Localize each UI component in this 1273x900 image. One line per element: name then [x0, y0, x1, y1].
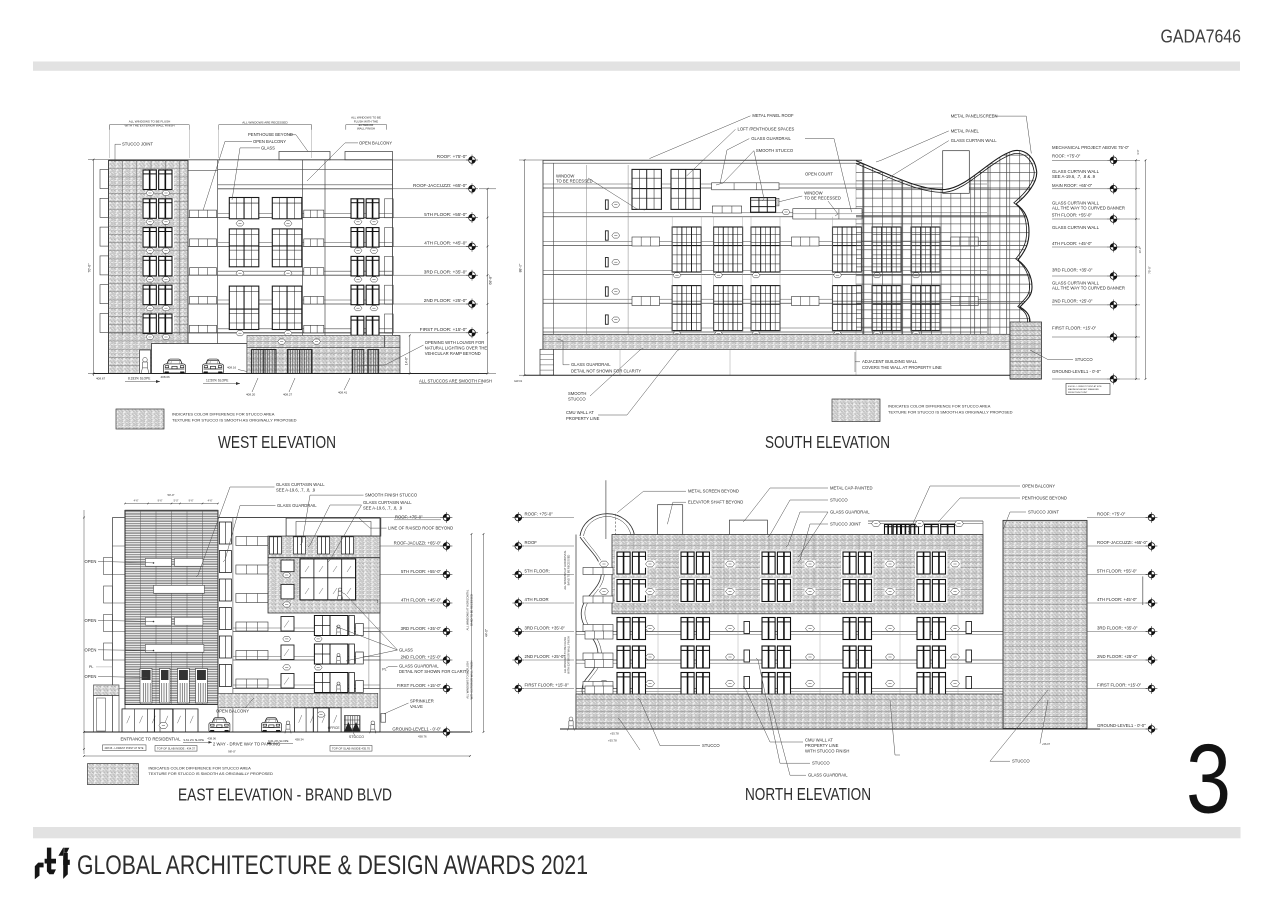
svg-text:408.06: 408.06	[161, 375, 171, 379]
svg-text:STUCCO: STUCCO	[830, 497, 848, 502]
svg-text:SMOOTH STUCCO: SMOOTH STUCCO	[756, 148, 794, 153]
svg-text:SMOOTH: SMOOTH	[568, 391, 586, 396]
svg-text:STUCCO: STUCCO	[812, 761, 830, 766]
svg-text:GLASS GUARDRAIL: GLASS GUARDRAIL	[808, 773, 848, 778]
svg-text:ROOF: +75'-0": ROOF: +75'-0"	[525, 512, 554, 517]
svg-text:4'-6": 4'-6"	[208, 500, 213, 503]
svg-text:14'-6": 14'-6"	[405, 357, 409, 365]
svg-text:2ND FLOOR: +25'-0": 2ND FLOOR: +25'-0"	[1097, 654, 1138, 659]
svg-text:WALL FINISH: WALL FINISH	[357, 127, 375, 131]
svg-text:408.16: 408.16	[227, 366, 237, 370]
svg-text:WITH EXTERIOR WALL FINISH: WITH EXTERIOR WALL FINISH	[567, 636, 571, 674]
svg-text:ALL THE WAY TO CURVED BANNER: ALL THE WAY TO CURVED BANNER	[1052, 206, 1125, 211]
svg-text:SEE A-19.6, .7, .8, .9: SEE A-19.6, .7, .8, .9	[276, 488, 316, 493]
svg-text:VEHICULAR RAMP BEYOND: VEHICULAR RAMP BEYOND	[425, 351, 481, 356]
svg-text:44'-0": 44'-0"	[485, 629, 489, 637]
svg-text:408.67: 408.67	[96, 377, 106, 381]
svg-text:FROM THIS POINT: FROM THIS POINT	[1068, 392, 1088, 394]
svg-text:3'-0": 3'-0"	[1136, 149, 1140, 154]
svg-text:12.50% SLOPE: 12.50% SLOPE	[206, 379, 228, 383]
svg-text:GROUND-LEVEL1 - 0'-0": GROUND-LEVEL1 - 0'-0"	[1097, 723, 1146, 728]
svg-text:2ND FLOOR: +25'-0": 2ND FLOOR: +25'-0"	[401, 655, 442, 660]
svg-text:LOFT /PENTHOUSE SPACES: LOFT /PENTHOUSE SPACES	[738, 127, 795, 132]
svg-text:ROOF: +75'-0": ROOF: +75'-0"	[395, 514, 423, 519]
svg-text:INDICATES COLOR DIFFERENCE FOR: INDICATES COLOR DIFFERENCE FOR STUCCO AR…	[148, 765, 251, 770]
svg-text:OPEN COURT: OPEN COURT	[805, 171, 833, 176]
svg-text:3RD FLOOR: +35'-0": 3RD FLOOR: +35'-0"	[401, 626, 442, 631]
svg-text:STUCCO: STUCCO	[1012, 759, 1030, 764]
svg-text:4TH FLOOR: +45'-0": 4TH FLOOR: +45'-0"	[401, 598, 441, 603]
svg-text:ALL WINDOWS TO BE FLUSH: ALL WINDOWS TO BE FLUSH	[563, 637, 567, 673]
svg-text:FIRST FLOOR: +15'-0": FIRST FLOOR: +15'-0"	[1097, 683, 1142, 688]
svg-text:TOP OF SLAB INSIDE 435.70: TOP OF SLAB INSIDE 435.70	[332, 747, 371, 751]
svg-text:METAL CAP-PAINTED: METAL CAP-PAINTED	[830, 485, 873, 490]
svg-text:METAL SCREEN BEYOND: METAL SCREEN BEYOND	[688, 489, 739, 494]
svg-text:MAXIMUM HEIGHT MEASURE: MAXIMUM HEIGHT MEASURE	[1068, 388, 1099, 391]
svg-text:WEST ELEVATION: WEST ELEVATION	[218, 432, 336, 452]
svg-text:STUCCO: STUCCO	[702, 743, 720, 748]
svg-text:3RD FLOOR: +35'-0": 3RD FLOOR: +35'-0"	[525, 626, 566, 631]
svg-text:ELEVATOR SHAFT BEYOND: ELEVATOR SHAFT BEYOND	[688, 500, 743, 505]
svg-text:OPEN BALCONY: OPEN BALCONY	[1022, 483, 1055, 488]
svg-text:2ND FLOOR: +25'-0": 2ND FLOOR: +25'-0"	[1052, 299, 1093, 304]
svg-text:GLASS GUARDRAIL: GLASS GUARDRAIL	[571, 362, 611, 367]
svg-text:INDICATES COLOR DIFFERENCE FOR: INDICATES COLOR DIFFERENCE FOR STUCCO AR…	[172, 412, 275, 417]
svg-text:GLASS: GLASS	[399, 648, 413, 653]
svg-text:STUCCO JOINT: STUCCO JOINT	[830, 521, 861, 526]
svg-text:ALL WINDOWS TO BE FLUSH: ALL WINDOWS TO BE FLUSH	[466, 661, 470, 698]
svg-text:4TH FLOOR: +45'-0": 4TH FLOOR: +45'-0"	[424, 241, 467, 246]
svg-text:PENTHOUSE BEYOND: PENTHOUSE BEYOND	[1022, 495, 1067, 500]
svg-text:GLASS CURTASIN WALL: GLASS CURTASIN WALL	[276, 482, 325, 487]
svg-text:SEE A-19.6, .7, .8 & .9: SEE A-19.6, .7, .8 & .9	[1052, 174, 1096, 179]
svg-text:MAIN ROOF: +65'-0": MAIN ROOF: +65'-0"	[1052, 183, 1093, 188]
svg-text:3RD FLOOR: +35'-0": 3RD FLOOR: +35'-0"	[1097, 626, 1138, 631]
svg-text:ROOF: ROOF	[525, 540, 538, 545]
svg-text:FIRST FLOOR: +15'-0": FIRST FLOOR: +15'-0"	[397, 683, 442, 688]
svg-text:9'-6": 9'-6"	[158, 500, 163, 503]
svg-text:GW-01: GW-01	[514, 379, 523, 383]
svg-text:9-61.2% SLOPE: 9-61.2% SLOPE	[268, 739, 289, 743]
svg-text:PL: PL	[89, 665, 93, 669]
svg-text:5TH FLOOR:: 5TH FLOOR:	[525, 569, 550, 574]
svg-text:9'-6": 9'-6"	[189, 500, 194, 503]
svg-text:STUCCO: STUCCO	[1075, 357, 1093, 362]
svg-text:438.06: 438.06	[207, 737, 216, 741]
svg-text:SMOOTH FINISH STUCCO: SMOOTH FINISH STUCCO	[365, 493, 418, 498]
svg-text:DETAIL NOT SHOWN FOR CLARITY: DETAIL NOT SHOWN FOR CLARITY	[399, 669, 469, 674]
svg-text:TEXTURE FOR STUCCO IS SMOOTH A: TEXTURE FOR STUCCO IS SMOOTH AS ORIGINAL…	[172, 418, 297, 423]
svg-text:OPEN: OPEN	[85, 674, 97, 679]
svg-text:PROPERTY LINE: PROPERTY LINE	[805, 743, 839, 748]
svg-text:SPRINKLER: SPRINKLER	[410, 698, 434, 703]
svg-text:BAND TO BE RECESSED: BAND TO BE RECESSED	[469, 594, 473, 626]
svg-text:OFFICE: OFFICE	[328, 726, 340, 730]
svg-text:BAND TO BE RECESSED: BAND TO BE RECESSED	[567, 555, 571, 586]
svg-text:70'-0": 70'-0"	[88, 263, 92, 273]
svg-text:50'-0": 50'-0"	[167, 493, 174, 497]
svg-text:NORTH ELEVATION: NORTH ELEVATION	[745, 784, 871, 804]
svg-text:10'-0": 10'-0"	[1138, 247, 1142, 254]
svg-text:ADJACENT BUILDING WALL: ADJACENT BUILDING WALL	[862, 359, 918, 364]
svg-text:TOP OF SLAB INSIDE : 434.37: TOP OF SLAB INSIDE : 434.37	[157, 747, 196, 751]
svg-text:434.36 - LOWEST POINT AT SITE: 434.36 - LOWEST POINT AT SITE	[1068, 385, 1102, 388]
svg-text:GLASS GUARDRAIL: GLASS GUARDRAIL	[399, 664, 439, 669]
svg-text:2ND FLOOR: +25'-0": 2ND FLOOR: +25'-0"	[424, 298, 468, 303]
svg-text:408.20: 408.20	[246, 393, 256, 397]
svg-text:FIRST FLOOR: +15'-0": FIRST FLOOR: +15'-0"	[420, 327, 468, 332]
svg-text:3: 3	[1186, 724, 1231, 834]
svg-text:ROOF-JACCUZZI: +65'-0": ROOF-JACCUZZI: +65'-0"	[1097, 540, 1148, 545]
svg-text:GLASS GUARDRAIL: GLASS GUARDRAIL	[751, 136, 791, 141]
svg-text:75'-0": 75'-0"	[1148, 266, 1152, 274]
svg-text:FIRST FLOOR: +15'-0": FIRST FLOOR: +15'-0"	[525, 683, 570, 688]
svg-text:ALL WINDOWS AT HORIZONTAL: ALL WINDOWS AT HORIZONTAL	[466, 589, 470, 630]
svg-text:PROPERTY LINE: PROPERTY LINE	[566, 416, 600, 421]
svg-text:88'-0": 88'-0"	[519, 263, 523, 272]
svg-text:OPENING WITH LOUVER FOR: OPENING WITH LOUVER FOR	[425, 340, 485, 345]
svg-text:ALL WINDOWS ARE RECESSED: ALL WINDOWS ARE RECESSED	[242, 121, 288, 125]
svg-text:GLASS CURTASIN WALL: GLASS CURTASIN WALL	[363, 500, 412, 505]
svg-text:GLOBAL ARCHITECTURE & DESIGN A: GLOBAL ARCHITECTURE & DESIGN AWARDS 2021	[77, 850, 588, 880]
svg-text:CMU WALL AT: CMU WALL AT	[805, 737, 833, 742]
svg-text:3RD FLOOR: +35'-0": 3RD FLOOR: +35'-0"	[1052, 268, 1093, 273]
svg-text:STUCCO: STUCCO	[349, 735, 364, 739]
svg-text:5TH FLOOR: +55'-0": 5TH FLOOR: +55'-0"	[424, 212, 467, 217]
svg-text:OPEN: OPEN	[85, 647, 97, 652]
svg-text:GLASS CURTAIN WALL: GLASS CURTAIN WALL	[1052, 225, 1100, 230]
svg-text:COVERS THE WALL AT PROPERTY LI: COVERS THE WALL AT PROPERTY LINE	[862, 365, 942, 370]
svg-text:METAL PANEL/SCREEN: METAL PANEL/SCREEN	[951, 114, 998, 119]
svg-text:LINE OF RAISED ROOF BEYOND: LINE OF RAISED ROOF BEYOND	[388, 526, 453, 531]
svg-text:438.76: 438.76	[418, 735, 427, 739]
svg-text:GLASS GUARDRAIL: GLASS GUARDRAIL	[277, 503, 317, 508]
svg-text:FIRST FLOOR: +15'-0": FIRST FLOOR: +15'-0"	[1052, 326, 1097, 331]
svg-text:ROOF-JACCUZZI: +65'-0": ROOF-JACCUZZI: +65'-0"	[413, 183, 467, 188]
svg-text:DETAIL NOT SHOWN FOR CLARITY: DETAIL NOT SHOWN FOR CLARITY	[571, 369, 641, 374]
svg-text:ROOF-JACUZZI: +65'-0": ROOF-JACUZZI: +65'-0"	[394, 541, 442, 546]
svg-text:TO BE RECESSED: TO BE RECESSED	[556, 179, 593, 184]
svg-text:ENTRANCE TO RESIDENTIAL: ENTRANCE TO RESIDENTIAL	[121, 737, 182, 742]
svg-text:METAL PANEL ROOF: METAL PANEL ROOF	[752, 113, 794, 118]
svg-text:3RD FLOOR: +35'-0": 3RD FLOOR: +35'-0"	[424, 269, 468, 274]
svg-text:OPEN BALCONY: OPEN BALCONY	[253, 139, 286, 144]
svg-text:ALL THE WAY TO CURVED BANNER: ALL THE WAY TO CURVED BANNER	[1052, 286, 1125, 291]
svg-text:OPEN BALCONY: OPEN BALCONY	[216, 709, 249, 714]
svg-text:PENTHOUSE BEYOND: PENTHOUSE BEYOND	[248, 132, 293, 137]
svg-text:STUCCO JOINT: STUCCO JOINT	[122, 142, 153, 147]
svg-text:8.333% SLOPE: 8.333% SLOPE	[128, 377, 150, 381]
svg-text:2ND FLOOR: +25'-0": 2ND FLOOR: +25'-0"	[525, 654, 566, 659]
svg-text:OPEN: OPEN	[85, 559, 97, 564]
svg-text:98'-0": 98'-0"	[228, 749, 236, 753]
svg-text:9-61.2% SLOPE: 9-61.2% SLOPE	[184, 738, 205, 742]
svg-text:METAL PANEL: METAL PANEL	[951, 128, 980, 133]
svg-text:GLASS CURTAIN WALL: GLASS CURTAIN WALL	[951, 138, 997, 143]
svg-text:4TH FLOOR: +45'-0": 4TH FLOOR: +45'-0"	[1097, 597, 1137, 602]
svg-text:GLASS: GLASS	[261, 145, 275, 150]
svg-text:OPEN BALCONY: OPEN BALCONY	[359, 140, 392, 145]
svg-text:GROUND-LEVEL1 - 0'-0": GROUND-LEVEL1 - 0'-0"	[1052, 369, 1101, 374]
svg-text:ALL WINDOWS AT HORIZONTAL: ALL WINDOWS AT HORIZONTAL	[563, 550, 567, 590]
svg-text:TO BE RECESSED: TO BE RECESSED	[804, 196, 841, 201]
svg-text:NATURAL LIGHTING OVER THE: NATURAL LIGHTING OVER THE	[425, 345, 488, 350]
svg-text:5'-0": 5'-0"	[174, 500, 179, 503]
svg-text:4'-6": 4'-6"	[134, 500, 139, 503]
svg-text:TEXTURE FOR STUCCO IS SMOOTH A: TEXTURE FOR STUCCO IS SMOOTH AS ORIGINAL…	[148, 771, 273, 776]
svg-text:TEXTURE FOR STUCCO IS SMOOTH A: TEXTURE FOR STUCCO IS SMOOTH AS ORIGINAL…	[888, 410, 1013, 415]
svg-text:408.27: 408.27	[283, 393, 293, 397]
svg-text:OPEN: OPEN	[85, 618, 97, 623]
svg-text:WITH STUCCO FINISH: WITH STUCCO FINISH	[805, 749, 849, 754]
svg-text:STUCCO JOINT: STUCCO JOINT	[1028, 509, 1059, 514]
svg-text:GLASS GUARDRAIL: GLASS GUARDRAIL	[830, 509, 870, 514]
svg-text:5TH FLOOR: +55'-0": 5TH FLOOR: +55'-0"	[401, 569, 441, 574]
svg-text:EAST ELEVATION - BRAND BLVD: EAST ELEVATION - BRAND BLVD	[178, 785, 392, 805]
svg-text:INDICATES COLOR DIFFERENCE FOR: INDICATES COLOR DIFFERENCE FOR STUCCO AR…	[888, 404, 991, 409]
svg-text:ROOF: +75'-0": ROOF: +75'-0"	[1052, 153, 1081, 158]
svg-text:SEE A-19.6, .7, .8, .9: SEE A-19.6, .7, .8, .9	[363, 506, 403, 511]
svg-text:438.34: 438.34	[295, 738, 304, 742]
svg-text:+56.07: +56.07	[1042, 742, 1051, 746]
svg-text:WITH THE EXTERIOR WALL FINISH: WITH THE EXTERIOR WALL FINISH	[124, 123, 174, 127]
svg-text:GADA7646: GADA7646	[1161, 27, 1242, 47]
svg-text:68'-8": 68'-8"	[489, 275, 493, 285]
svg-text:438.36 - LOWEST POINT AT SITE: 438.36 - LOWEST POINT AT SITE	[105, 746, 144, 750]
svg-text:+55.78: +55.78	[608, 739, 617, 743]
svg-text:5TH FLOOR: +55'-0": 5TH FLOOR: +55'-0"	[1097, 569, 1137, 574]
svg-text:408.41: 408.41	[338, 391, 348, 395]
svg-text:MECHANICAL PROJECT ABOVE 75'-0: MECHANICAL PROJECT ABOVE 75'-0"	[1052, 145, 1130, 150]
svg-text:STUCCO: STUCCO	[568, 397, 586, 402]
svg-text:ROOF: +75'-0": ROOF: +75'-0"	[437, 154, 468, 159]
svg-text:4TH FLOOR: 4TH FLOOR	[525, 597, 549, 602]
svg-text:5TH FLOOR: +55'-0": 5TH FLOOR: +55'-0"	[1052, 212, 1092, 217]
svg-text:4TH FLOOR: +45'-0": 4TH FLOOR: +45'-0"	[1052, 241, 1092, 246]
svg-text:CMU WALL AT: CMU WALL AT	[566, 410, 594, 415]
svg-text:+55.78: +55.78	[610, 732, 619, 736]
svg-text:VALVE: VALVE	[410, 704, 423, 709]
svg-text:GROUND-LEVEL1 - 0'-0": GROUND-LEVEL1 - 0'-0"	[392, 727, 441, 732]
svg-text:ROOF: +75'-0": ROOF: +75'-0"	[1097, 512, 1126, 517]
svg-text:WITH EXTERIOR WALL FINISH: WITH EXTERIOR WALL FINISH	[469, 661, 473, 700]
svg-text:ALL STUCCOS ARE SMOOTH FINISH: ALL STUCCOS ARE SMOOTH FINISH	[419, 378, 492, 383]
svg-text:SOUTH ELEVATION: SOUTH ELEVATION	[765, 432, 890, 452]
